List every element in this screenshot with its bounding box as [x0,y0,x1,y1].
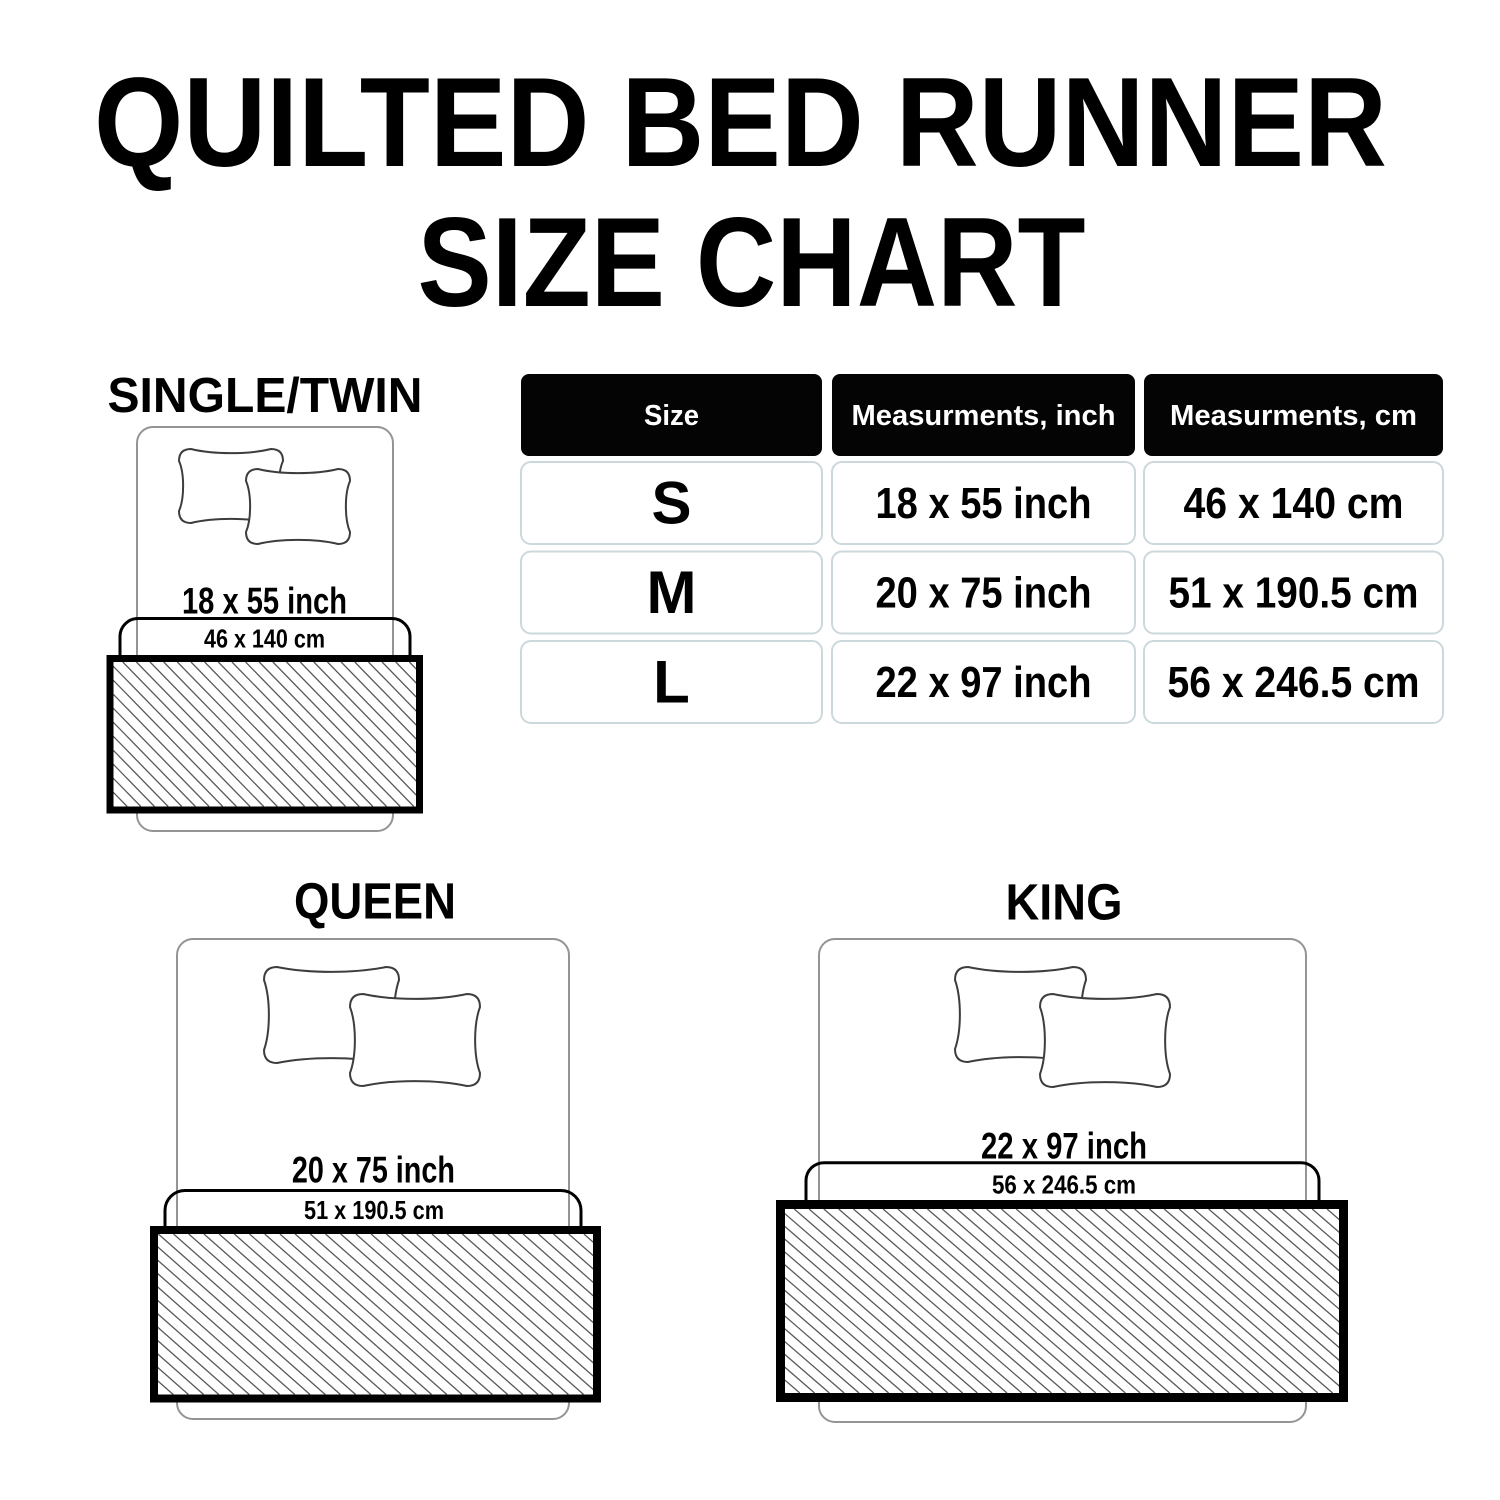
svg-text:QUILTED BED RUNNER: QUILTED BED RUNNER [94,51,1387,193]
svg-text:22 x 97 inch: 22 x 97 inch [876,658,1092,707]
svg-text:Size: Size [644,400,699,432]
svg-text:20 x 75 inch: 20 x 75 inch [876,569,1092,618]
svg-text:51 x 190.5 cm: 51 x 190.5 cm [304,1195,444,1225]
svg-text:18 x 55 inch: 18 x 55 inch [876,479,1092,528]
svg-text:18 x 55 inch: 18 x 55 inch [182,580,347,621]
svg-text:20 x 75 inch: 20 x 75 inch [292,1150,455,1191]
svg-text:KING: KING [1006,873,1123,930]
svg-text:Measurments, inch: Measurments, inch [852,400,1116,432]
svg-text:56 x 246.5 cm: 56 x 246.5 cm [1168,658,1420,707]
svg-text:Measurments, cm: Measurments, cm [1170,400,1417,432]
svg-text:SIZE CHART: SIZE CHART [418,191,1086,333]
svg-text:M: M [647,559,697,626]
svg-text:56 x 246.5 cm: 56 x 246.5 cm [992,1169,1136,1199]
svg-text:51 x 190.5 cm: 51 x 190.5 cm [1169,569,1419,618]
svg-text:46 x 140 cm: 46 x 140 cm [204,623,325,653]
svg-text:46 x 140 cm: 46 x 140 cm [1184,479,1404,528]
svg-text:QUEEN: QUEEN [294,873,456,930]
svg-text:22 x 97 inch: 22 x 97 inch [981,1125,1147,1166]
svg-text:S: S [651,470,691,537]
svg-text:SINGLE/TWIN: SINGLE/TWIN [108,369,423,423]
svg-text:L: L [653,649,690,716]
